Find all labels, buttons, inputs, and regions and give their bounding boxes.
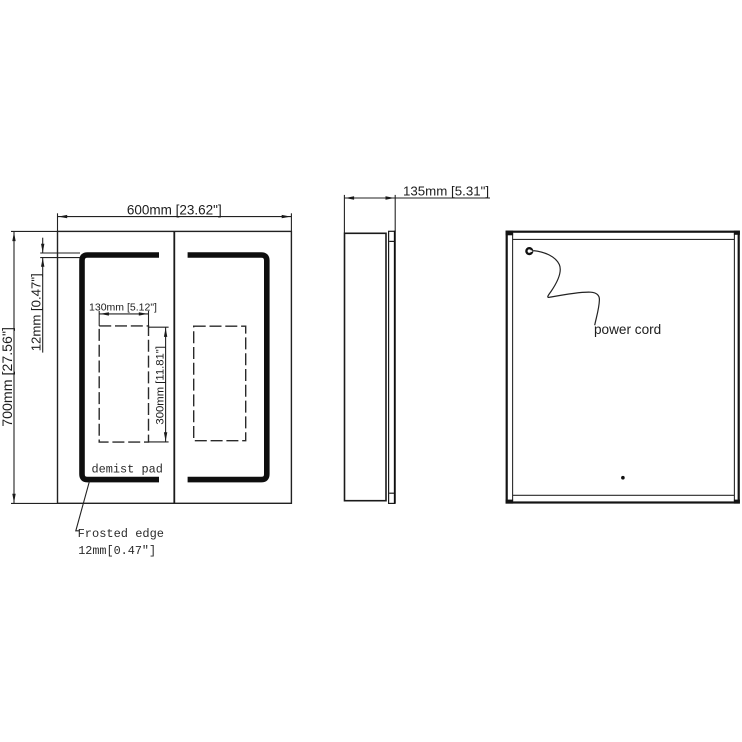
svg-text:600mm [23.62"]: 600mm [23.62"] [127,203,222,218]
svg-text:12mm [0.47"]: 12mm [0.47"] [29,273,44,351]
svg-text:power cord: power cord [594,322,661,337]
svg-text:demist pad: demist pad [92,462,163,476]
svg-text:135mm [5.31"]: 135mm [5.31"] [403,184,489,199]
svg-text:300mm [11.81"]: 300mm [11.81"] [155,346,167,425]
svg-text:130mm [5.12"]: 130mm [5.12"] [89,301,157,313]
svg-text:Frosted edge: Frosted edge [78,527,164,541]
svg-text:12mm[0.47″]: 12mm[0.47″] [78,544,156,558]
svg-text:700mm [27.56"]: 700mm [27.56"] [0,327,16,427]
